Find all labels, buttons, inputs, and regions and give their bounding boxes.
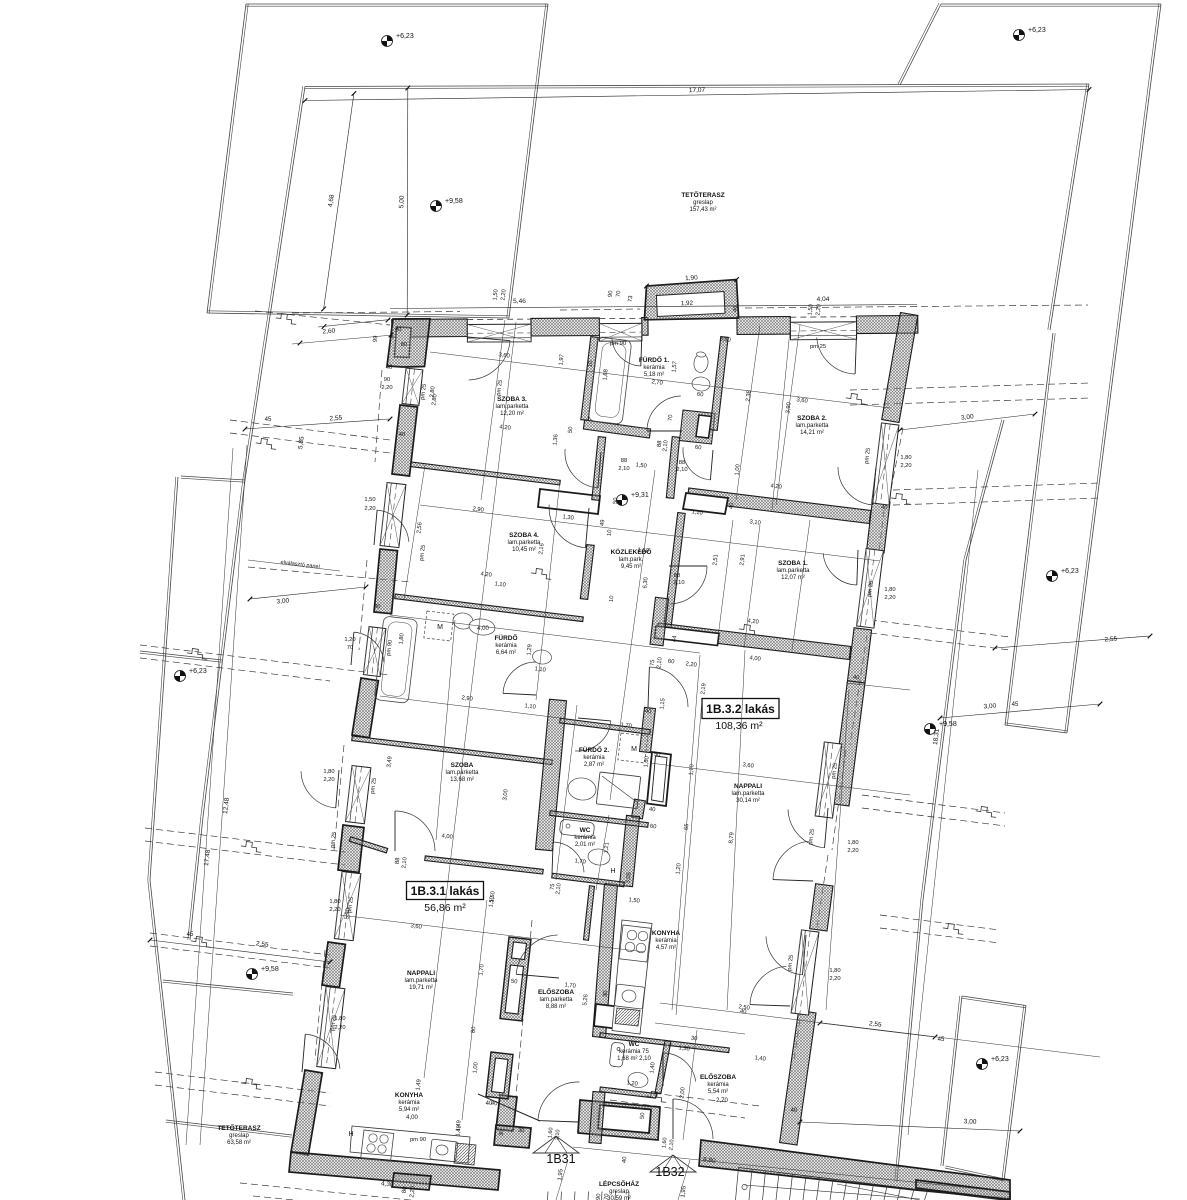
svg-text:kerámia: kerámia [574,835,596,841]
svg-text:88: 88 [395,857,402,864]
svg-text:5,18 m²: 5,18 m² [644,372,664,378]
svg-text:45: 45 [265,417,272,423]
svg-text:70: 70 [668,414,675,421]
svg-text:4,04: 4,04 [817,296,830,303]
svg-text:SZOBA 4.: SZOBA 4. [509,532,539,539]
svg-text:pm 25: pm 25 [810,344,826,350]
svg-text:30: 30 [691,1036,698,1043]
svg-text:pm 90: pm 90 [410,1137,426,1143]
svg-text:kerámia: kerámia [583,755,605,761]
svg-text:60: 60 [650,824,657,831]
svg-text:1,80: 1,80 [323,769,334,775]
svg-text:30: 30 [499,1129,506,1136]
svg-text:2,20: 2,20 [884,595,895,601]
svg-text:kerámia 75: kerámia 75 [619,1049,649,1055]
svg-text:+9,58: +9,58 [445,198,463,205]
svg-text:40: 40 [740,1009,747,1016]
svg-text:1B32: 1B32 [655,1165,684,1179]
svg-text:2,10: 2,10 [554,1129,561,1140]
svg-text:65: 65 [684,823,691,830]
svg-text:1,60: 1,60 [661,1137,668,1148]
svg-text:2,70: 2,70 [716,1098,728,1104]
svg-text:+9,58: +9,58 [939,721,957,728]
svg-text:3,00: 3,00 [983,702,997,710]
svg-text:1,60: 1,60 [547,1127,554,1138]
svg-text:kerámia: kerámia [398,1100,420,1106]
svg-text:40: 40 [649,807,656,814]
svg-text:40: 40 [622,1156,629,1163]
svg-text:6,64 m²: 6,64 m² [496,650,516,656]
svg-text:5,00: 5,00 [398,195,405,208]
svg-text:99: 99 [373,335,380,342]
svg-text:FÜRDŐ: FÜRDŐ [494,633,517,642]
svg-text:90: 90 [384,377,390,383]
svg-text:lam.parketta: lam.parketta [507,540,541,546]
svg-text:40: 40 [374,604,381,611]
svg-text:70: 70 [604,1193,611,1200]
svg-text:lam.parketta: lam.parketta [495,404,529,410]
svg-text:40: 40 [395,327,402,334]
svg-text:1B.3.2 lakás: 1B.3.2 lakás [706,702,775,716]
svg-text:NAPPALI: NAPPALI [407,970,435,977]
svg-text:lam.parketta: lam.parketta [404,978,438,984]
svg-text:3,00: 3,00 [276,597,290,605]
svg-text:ELŐSZOBA: ELŐSZOBA [700,1072,736,1081]
svg-text:12,20 m²: 12,20 m² [500,411,524,417]
svg-text:30,14 m²: 30,14 m² [736,798,760,804]
svg-text:10: 10 [607,529,614,536]
svg-text:1,80: 1,80 [884,587,895,593]
svg-text:FÜRDŐ 1.: FÜRDŐ 1. [639,355,670,364]
svg-text:10,45 m²: 10,45 m² [512,547,536,553]
svg-text:73: 73 [628,295,635,302]
svg-text:TETŐTERASZ: TETŐTERASZ [217,1123,260,1132]
svg-text:2,20: 2,20 [364,506,375,512]
svg-text:49: 49 [600,519,607,526]
svg-text:1B.3.1 lakás: 1B.3.1 lakás [411,884,480,898]
svg-text:50: 50 [640,1112,647,1119]
svg-text:46: 46 [733,305,740,312]
svg-text:2,20: 2,20 [829,976,840,982]
svg-text:H: H [348,1131,353,1138]
svg-text:10: 10 [609,595,616,602]
svg-text:90: 90 [608,290,615,297]
svg-text:9,45 m²: 9,45 m² [621,564,641,570]
svg-text:lam.parketta: lam.parketta [731,791,765,797]
svg-text:40: 40 [386,365,393,371]
svg-text:60: 60 [697,392,704,399]
svg-text:14,21 m²: 14,21 m² [800,430,824,436]
svg-text:WC: WC [629,1041,640,1048]
svg-text:50: 50 [568,426,575,433]
svg-text:2,20: 2,20 [329,907,340,913]
svg-text:+6,23: +6,23 [396,33,414,40]
svg-text:2,20: 2,20 [381,385,392,391]
svg-text:2,20: 2,20 [847,848,858,854]
svg-text:FÜRDŐ 2.: FÜRDŐ 2. [579,745,610,754]
svg-text:2,87 m²: 2,87 m² [584,762,604,768]
svg-text:M: M [437,624,443,631]
svg-text:1,80: 1,80 [329,899,340,905]
svg-text:KONYHA: KONYHA [395,1092,423,1099]
svg-text:30,59 m²: 30,59 m² [607,1196,631,1200]
svg-text:kerámia: kerámia [495,643,517,649]
svg-text:1,80: 1,80 [900,455,911,461]
svg-text:80: 80 [401,342,407,348]
svg-text:40: 40 [853,675,860,682]
svg-text:M: M [631,746,637,753]
svg-text:90: 90 [596,1193,603,1200]
svg-text:SZOBA 2.: SZOBA 2. [797,415,827,422]
svg-text:75: 75 [650,659,657,666]
svg-text:40: 40 [645,709,652,716]
svg-text:2,10: 2,10 [668,1139,675,1150]
svg-text:1,20: 1,20 [344,637,355,643]
svg-text:40: 40 [399,432,405,438]
svg-text:45: 45 [187,932,194,938]
svg-text:40: 40 [791,1108,798,1114]
svg-text:KONYHA: KONYHA [652,930,680,937]
svg-text:30: 30 [603,990,610,997]
svg-text:lam.parketta: lam.parketta [776,568,810,574]
svg-text:greslap: greslap [229,1133,249,1139]
svg-text:30: 30 [518,1128,525,1135]
svg-text:+6,23: +6,23 [991,1056,1009,1063]
svg-text:88: 88 [621,458,627,464]
svg-text:2,10: 2,10 [673,580,684,586]
svg-text:4,00: 4,00 [406,1115,418,1121]
svg-text:13,68 m²: 13,68 m² [450,777,474,783]
svg-text:5,94 m²: 5,94 m² [399,1107,419,1113]
svg-text:108,36 m²: 108,36 m² [715,720,763,732]
svg-text:50: 50 [613,497,620,504]
svg-text:1,68 m² 2,10: 1,68 m² 2,10 [617,1056,651,1062]
svg-text:5,54 m²: 5,54 m² [708,1089,728,1095]
svg-text:3,00: 3,00 [964,1118,977,1126]
svg-text:19,71 m²: 19,71 m² [409,985,433,991]
svg-text:kerámia: kerámia [655,938,677,944]
svg-text:70: 70 [347,645,353,651]
svg-text:2,55: 2,55 [1104,636,1117,644]
svg-text:+6,23: +6,23 [1028,27,1046,34]
svg-text:kerámia: kerámia [707,1082,729,1088]
svg-text:70: 70 [616,290,623,297]
svg-text:LÉPCSŐHÁZ: LÉPCSŐHÁZ [599,1179,639,1188]
svg-text:2,20: 2,20 [900,463,911,469]
svg-text:60: 60 [695,445,702,452]
svg-text:+9,58: +9,58 [261,966,279,973]
svg-text:40: 40 [729,502,736,509]
svg-text:TETŐTERASZ: TETŐTERASZ [681,190,724,199]
svg-text:40: 40 [881,505,888,512]
svg-text:60: 60 [668,659,675,666]
svg-text:kerámia: kerámia [643,365,665,371]
svg-text:50: 50 [511,979,518,986]
svg-text:2,10: 2,10 [676,467,687,473]
svg-text:45: 45 [1012,702,1019,708]
svg-text:40: 40 [491,1101,498,1108]
svg-text:2,01 m²: 2,01 m² [575,842,595,848]
svg-text:17,07: 17,07 [689,87,706,94]
svg-text:H: H [610,868,615,875]
svg-text:+6,23: +6,23 [1061,568,1079,575]
svg-text:63,58 m²: 63,58 m² [227,1140,251,1146]
svg-text:5,46: 5,46 [513,298,526,305]
svg-text:lam.parketta: lam.parketta [445,770,479,776]
svg-text:80: 80 [471,1026,478,1033]
svg-text:2,10: 2,10 [618,466,629,472]
svg-text:88: 88 [674,573,680,579]
svg-text:2,60: 2,60 [322,328,335,336]
svg-text:88: 88 [679,460,685,466]
svg-text:10: 10 [588,360,595,367]
svg-text:WC: WC [580,827,591,834]
svg-text:8,88 m²: 8,88 m² [546,1004,566,1010]
svg-text:lam.park.: lam.park. [619,557,644,563]
svg-text:2,20: 2,20 [323,777,334,783]
svg-text:1,50: 1,50 [364,497,375,503]
svg-text:1B31: 1B31 [546,1152,575,1166]
svg-text:lam.parketta: lam.parketta [539,997,573,1003]
svg-text:12,07 m²: 12,07 m² [781,575,805,581]
svg-text:1,92: 1,92 [681,300,694,307]
svg-text:1,80: 1,80 [847,840,858,846]
svg-text:greslap: greslap [609,1189,629,1195]
svg-text:4,57 m²: 4,57 m² [656,945,676,951]
svg-text:+6,23: +6,23 [189,668,207,675]
svg-text:1,80: 1,80 [829,968,840,974]
svg-text:2,55: 2,55 [329,415,342,423]
svg-text:pm 90: pm 90 [610,341,626,347]
svg-text:50: 50 [654,752,661,759]
svg-text:lam.parketta: lam.parketta [795,423,829,429]
svg-text:greslap: greslap [693,200,713,206]
svg-text:157,43 m²: 157,43 m² [689,207,716,213]
svg-text:1,90: 1,90 [685,274,699,282]
svg-text:+9,31: +9,31 [631,492,649,499]
